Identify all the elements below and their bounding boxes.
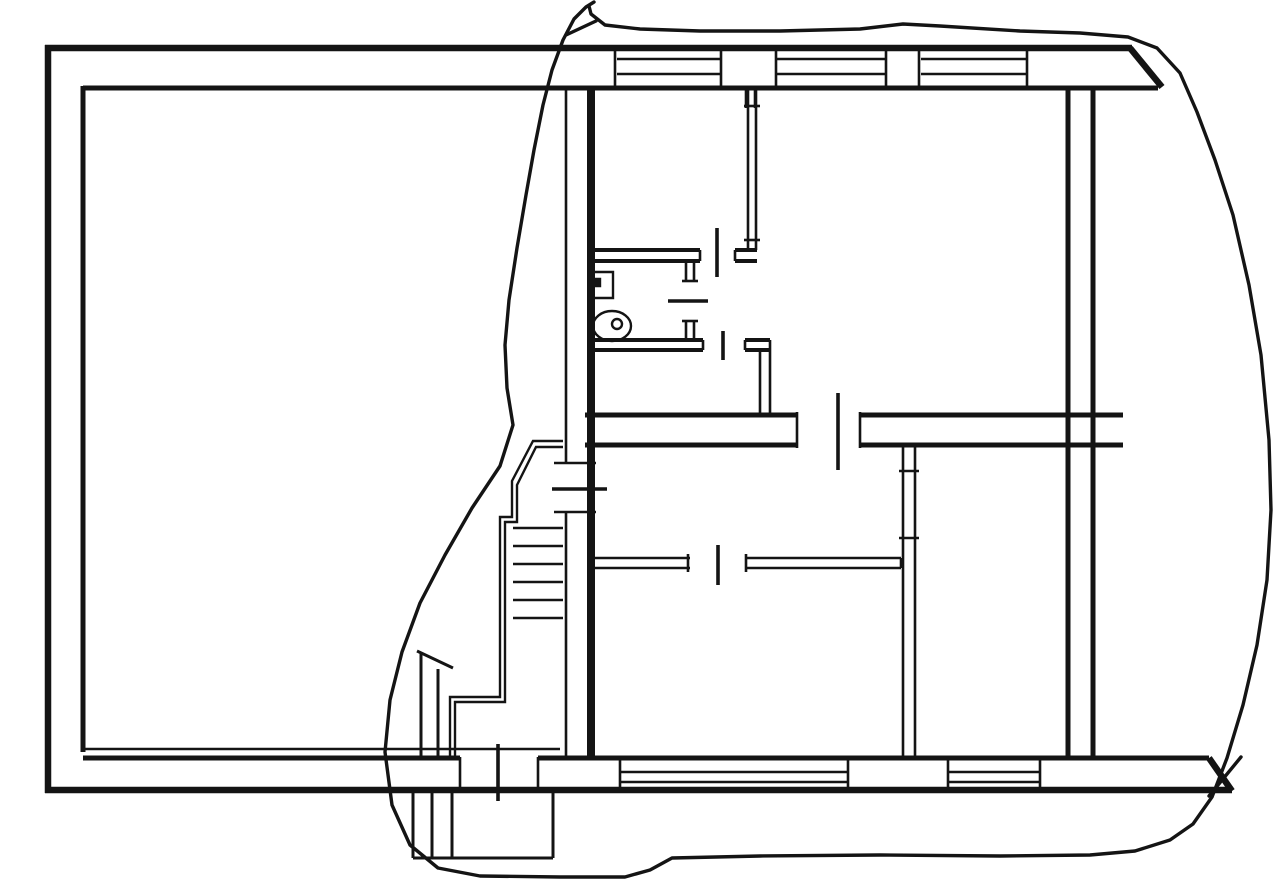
outer-walls xyxy=(45,45,1232,793)
thin-partitions-and-jambs xyxy=(83,48,1040,791)
staircase xyxy=(450,441,563,758)
bathroom-fixtures xyxy=(592,272,631,341)
floor-plan-canvas xyxy=(0,0,1280,888)
staircase-path xyxy=(455,447,563,758)
door-ticks xyxy=(498,228,838,801)
floor-plan-svg xyxy=(0,0,1280,888)
main-interior-walls xyxy=(83,86,1209,758)
bathroom-fixtures-rect xyxy=(594,279,600,286)
bathroom-fixtures-circle xyxy=(612,319,622,329)
outer-walls-segment xyxy=(1130,48,1162,87)
freehand-annotation-path xyxy=(385,2,1271,877)
freehand-annotation xyxy=(385,2,1271,877)
entrance-porch xyxy=(413,651,553,858)
